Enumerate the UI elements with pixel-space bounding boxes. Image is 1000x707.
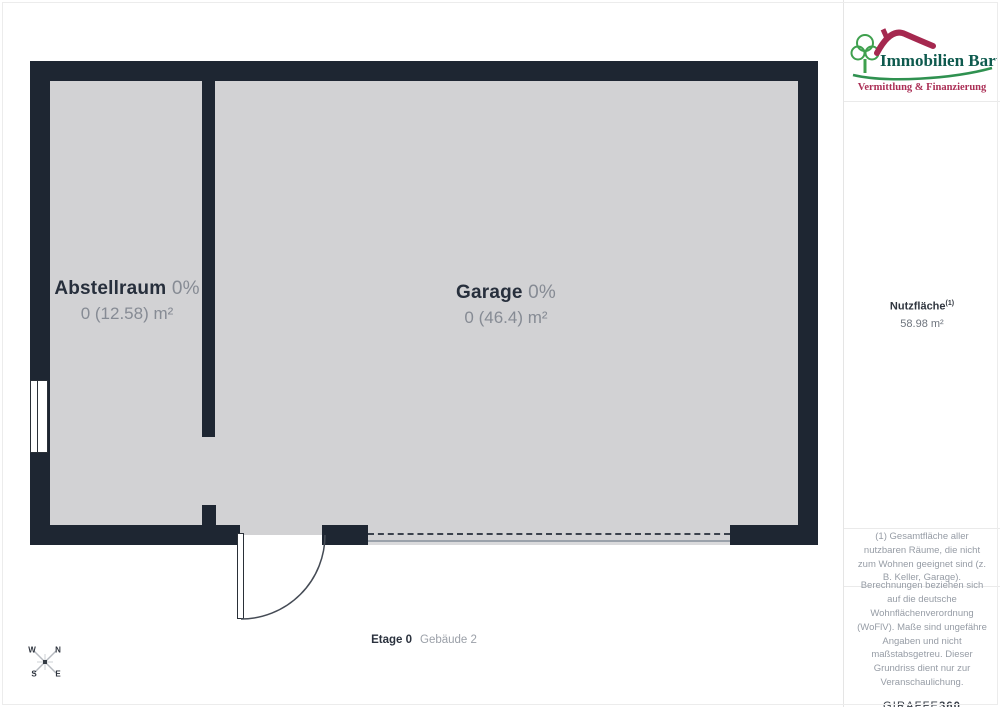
metric-label: Nutzfläche(1) [890, 300, 954, 313]
logo-tagline: Vermittlung & Finanzierung [858, 82, 987, 93]
disclaimer-text: Berechnungen beziehen sich auf die deuts… [854, 579, 990, 689]
logo-section: Immobilien Bart Vermittlung & Finanzieru… [844, 0, 1000, 102]
floorplan-drawing: Abstellraum 0% 0 (12.58) m² Garage 0% 0 … [0, 0, 843, 707]
wall-top [30, 61, 818, 81]
room-percent: 0% [528, 282, 556, 303]
footnote-text: (1) Gesamtfläche aller nutzbaren Räume, … [854, 530, 990, 585]
building-name: Gebäude 2 [420, 634, 477, 646]
logo-company-name: Immobilien Bart [880, 51, 997, 70]
window [30, 380, 48, 453]
wall-bottom-right [730, 525, 818, 545]
compass-north: N [55, 646, 61, 655]
door-threshold [240, 525, 322, 535]
metric-section: Nutzfläche(1) 58.98 m² [844, 102, 1000, 529]
company-logo: Immobilien Bart Vermittlung & Finanzieru… [847, 5, 997, 97]
room-label-abstellraum: Abstellraum 0% 0 (12.58) m² [54, 278, 199, 324]
room-percent: 0% [172, 278, 200, 299]
room-area: 0 (12.58) m² [54, 304, 199, 324]
wall-right [798, 61, 818, 545]
room-area: 0 (46.4) m² [456, 308, 556, 328]
logo-roof-icon [877, 28, 933, 53]
room-name: Abstellraum [54, 278, 166, 299]
metric-label-text: Nutzfläche [890, 301, 946, 313]
brand-giraffe: GIRAFFE [883, 700, 939, 707]
garage-door-sill [368, 542, 730, 545]
room-name: Garage [456, 282, 523, 303]
wall-bottom-left [30, 525, 240, 545]
wall-divider-stub [202, 505, 216, 525]
wall-left [30, 61, 50, 545]
floor-name: Etage 0 [371, 634, 412, 646]
room-label-garage: Garage 0% 0 (46.4) m² [456, 282, 556, 328]
wall-bottom-middle [322, 525, 368, 545]
footnote-section: (1) Gesamtfläche aller nutzbaren Räume, … [844, 529, 1000, 587]
compass-south: S [31, 670, 36, 679]
metric-footnote-marker: (1) [946, 300, 955, 307]
compass-west: W [28, 646, 36, 655]
info-sidebar: Immobilien Bart Vermittlung & Finanzieru… [843, 0, 1000, 707]
window-mullion [37, 381, 38, 452]
garage-door-dashed-line [368, 533, 730, 535]
metric-value: 58.98 m² [900, 318, 943, 330]
compass-east: E [55, 670, 60, 679]
wall-divider-upper [202, 81, 215, 437]
brand-360: 360 [939, 700, 961, 707]
disclaimer-section: Berechnungen beziehen sich auf die deuts… [844, 587, 1000, 704]
floor-caption: Etage 0Gebäude 2 [371, 634, 477, 646]
floorplan-page: Abstellraum 0% 0 (12.58) m² Garage 0% 0 … [0, 0, 1000, 707]
door-leaf [237, 533, 244, 619]
giraffe360-brand: GIRAFFE360 [883, 700, 961, 707]
